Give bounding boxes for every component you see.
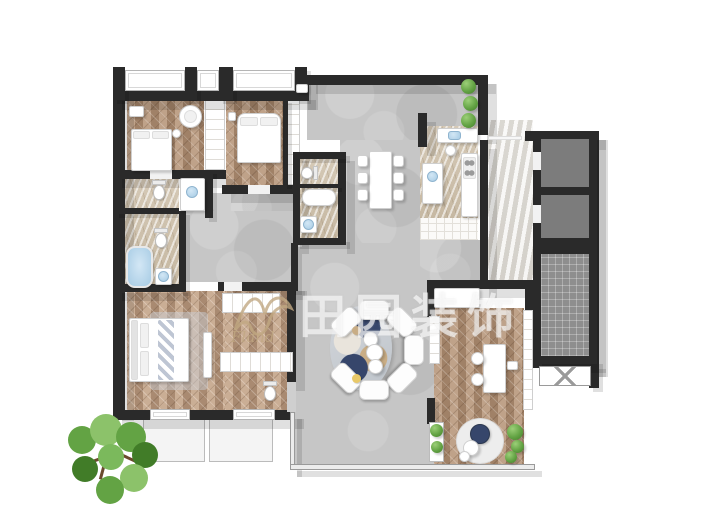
watermark-logo-text: Fland	[231, 328, 274, 346]
study-chair-1	[471, 352, 484, 365]
bath-1-toilet	[153, 185, 165, 200]
stair-closet	[539, 366, 591, 386]
elevator-door-1	[533, 152, 541, 170]
guest-bath-tub	[302, 189, 336, 206]
watermark-logo: Fland	[225, 284, 299, 348]
guest-bath-sink	[303, 219, 314, 230]
dressing-wardrobe-south	[220, 352, 293, 372]
north-window-pier-3	[219, 67, 233, 100]
bath-1-east-wall	[205, 170, 213, 218]
corridor-floor	[186, 211, 298, 282]
elevator-lobby-floor	[487, 120, 533, 280]
bedroom-1-side-table	[172, 129, 181, 138]
master-pillow-2	[140, 351, 149, 376]
corridor-floor-upper	[213, 193, 298, 211]
elevator-shaft-2	[541, 195, 589, 238]
study-mini-table	[459, 451, 470, 462]
watermark-brand-text: 田园装饰	[299, 292, 523, 344]
study-west-stub-2	[427, 398, 435, 424]
tree-foliage-8	[98, 444, 124, 470]
floor-plan: Fland 田园装饰	[0, 0, 720, 528]
tree-foliage-6	[96, 476, 124, 504]
study-side-table	[507, 361, 518, 370]
guest-bath-west-wall	[293, 152, 300, 245]
dining-chair-6	[393, 189, 404, 201]
bedroom-2-east-wall	[283, 99, 288, 185]
master-throw-blanket	[158, 320, 174, 380]
kitchen-island-sink	[427, 171, 438, 182]
master-pillow-1	[140, 323, 149, 348]
bath-2-sink	[158, 271, 169, 282]
terrace-rail-south	[290, 464, 535, 470]
bath-2-toilet	[155, 233, 167, 248]
elevator-shaft-1	[541, 139, 589, 187]
balcony-plant-1	[461, 79, 476, 94]
living-room-floor-east	[420, 240, 487, 280]
dining-chair-1	[357, 155, 368, 167]
guest-bath-east-wall	[338, 152, 346, 245]
terrace-rail-west	[290, 412, 295, 470]
sofa-module-6	[359, 380, 389, 400]
north-hall-wall	[307, 75, 487, 85]
bath-2-bathtub	[126, 246, 153, 288]
coffee-table-3	[368, 359, 383, 374]
entry-door	[488, 136, 522, 140]
dining-chair-5	[393, 172, 404, 184]
tree-foliage-7	[72, 456, 98, 482]
south-patio-2	[209, 418, 273, 462]
master-toilet	[264, 386, 276, 401]
bedroom-1-pillow-1	[133, 131, 150, 139]
elevator-door-2	[533, 205, 541, 223]
guest-bath-north-wall	[296, 152, 346, 159]
bedroom-1-pillow-2	[152, 131, 169, 139]
guest-bath-toilet	[301, 167, 313, 179]
kitchen-counter-zone	[420, 218, 478, 240]
garden-tree	[60, 410, 164, 510]
bedroom-1-tv	[129, 106, 144, 117]
study-east-closet	[523, 310, 533, 410]
dining-chair-4	[393, 155, 404, 167]
bedroom-2-pillow-2	[260, 117, 278, 126]
bedroom-1-window	[125, 70, 185, 91]
bath-east-wall	[179, 211, 186, 292]
west-exterior-wall	[113, 91, 125, 412]
study-plant-1	[430, 424, 443, 437]
dining-chair-3	[357, 189, 368, 201]
kitchen-east-wall	[478, 75, 488, 135]
north-window-small	[197, 70, 219, 91]
bath-1-sink	[186, 186, 198, 198]
kitchen-island	[422, 163, 443, 204]
study-plant-2	[431, 441, 443, 453]
kitchen-west-stub	[418, 113, 427, 147]
bedroom-2-door	[248, 185, 270, 194]
master-tv-console	[203, 332, 212, 378]
guest-bath-toilet-tank	[313, 166, 318, 180]
kitchen-top-sink	[448, 131, 461, 140]
balcony-plant-3	[461, 113, 476, 128]
living-west-door	[287, 382, 296, 412]
guest-bath-divider	[298, 184, 338, 188]
bedroom-2-pillow-1	[240, 117, 258, 126]
study-plant-3	[507, 424, 523, 440]
dining-table	[369, 151, 392, 209]
watermark: Fland 田园装饰	[225, 284, 485, 348]
bedroom-2-window	[233, 70, 295, 91]
north-window-pier-1	[113, 67, 125, 100]
study-desk	[483, 344, 506, 393]
floor-lamp	[352, 374, 361, 383]
study-chair-2	[471, 373, 484, 386]
north-bedroom-wall	[113, 91, 307, 101]
bedroom-1-door	[150, 170, 172, 179]
balcony-plant-2	[463, 96, 478, 111]
tree-foliage-5	[120, 464, 148, 492]
wardrobe-between-bedrooms	[205, 99, 225, 170]
stairwell-stairs	[541, 254, 589, 356]
entry-shoe-cabinet	[296, 84, 308, 93]
master-headboard	[131, 320, 138, 380]
kitchen-stove	[463, 157, 476, 179]
bath-divider-wall	[115, 208, 179, 214]
master-south-window-2	[233, 409, 275, 420]
guest-bath-south-wall	[296, 238, 346, 245]
bedroom-2-nightstand	[228, 112, 236, 121]
kitchen-stool	[445, 145, 456, 156]
lobby-west-wall	[480, 140, 488, 240]
dining-chair-2	[357, 172, 368, 184]
bedroom-1-chair-cushion	[184, 110, 197, 123]
north-window-pier-2	[185, 67, 197, 100]
study-plant-5	[505, 451, 517, 463]
